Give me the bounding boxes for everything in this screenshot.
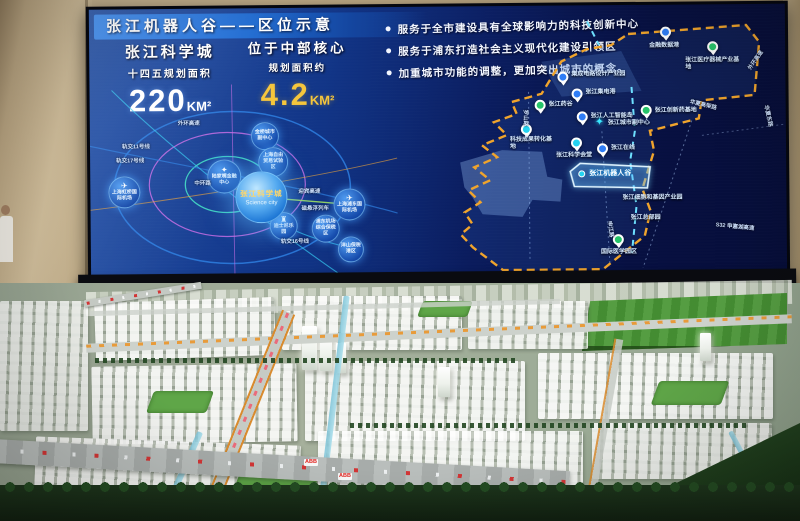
tree-row <box>350 423 750 428</box>
robot-valley-label: 张江机器人谷 <box>578 168 631 178</box>
bullet-dot-icon <box>386 48 391 53</box>
pin-jidiangang <box>572 88 583 103</box>
led-screen: 张江机器人谷——区位示意 服务于全市建设具有全球影响力的科技创新中心 服务于浦东… <box>86 1 790 283</box>
road-label: 轨交17号线 <box>116 156 144 164</box>
pin-ic-design-park <box>557 72 568 87</box>
pin-ai-island <box>577 111 588 126</box>
stat-caption: 十四五规划面积 <box>97 64 242 80</box>
node-bonded-zone: 浦东机场综合保税区 <box>312 215 340 243</box>
stat-name: 位于中部核心 <box>241 36 353 57</box>
exhibition-photo: 张江机器人谷——区位示意 服务于全市建设具有全球影响力的科技创新中心 服务于浦东… <box>0 0 800 521</box>
green-patch <box>146 391 214 413</box>
pin-science-hall <box>571 137 582 152</box>
tall-tower <box>700 333 711 361</box>
bullet-dot-icon <box>386 26 391 31</box>
road-label: 外环高速 <box>178 119 200 127</box>
stat-name: 张江科学城 <box>97 40 242 62</box>
node-pudong-airport: ✈ 上海浦东国际机场 <box>333 188 365 220</box>
road-label: 中环路 <box>194 179 211 187</box>
road-label: 磁悬浮列车 <box>302 204 330 212</box>
road-label: 迎宾高速 <box>298 187 320 195</box>
screen-title: 张江机器人谷——区位示意 <box>94 12 426 40</box>
node-zhangjiang-science-city: 张江科学城 Science city <box>235 171 287 223</box>
star-icon: ✦ <box>595 117 604 128</box>
building-cluster <box>0 301 88 431</box>
bullet-dot-icon <box>387 70 392 75</box>
pin-finance-data-port <box>660 27 671 42</box>
node-yangshan: 洋山保税港区 <box>338 236 364 262</box>
road-label: 轨交11号线 <box>122 142 150 150</box>
pin-innovative-drug-base <box>641 105 652 120</box>
foreground-trees <box>0 485 800 521</box>
tree-row <box>95 358 515 363</box>
node-jinqiao: 金桥城市副中心 <box>251 122 279 150</box>
green-patch <box>651 381 730 405</box>
abb-logo: ABB <box>304 459 318 466</box>
led-screen-content: 张江机器人谷——区位示意 服务于全市建设具有全球影响力的科技创新中心 服务于浦东… <box>89 4 787 280</box>
pin-pharma-valley <box>535 100 546 115</box>
tall-tower <box>302 326 317 370</box>
node-hongqiao-airport: ✈ 上海虹桥国际机场 <box>108 176 140 208</box>
pin-medical-device-base <box>707 41 718 56</box>
road-label: 轨交16号线 <box>281 237 309 245</box>
scale-model: ABB ABB <box>0 283 800 521</box>
road-label: 罗山路 <box>522 110 530 127</box>
robot-valley-pin <box>578 170 585 177</box>
tall-tower <box>438 367 450 397</box>
pin-zhangjiang-online <box>597 143 608 158</box>
building-cluster <box>538 353 773 419</box>
stat-caption: 规划面积约 <box>241 59 353 74</box>
